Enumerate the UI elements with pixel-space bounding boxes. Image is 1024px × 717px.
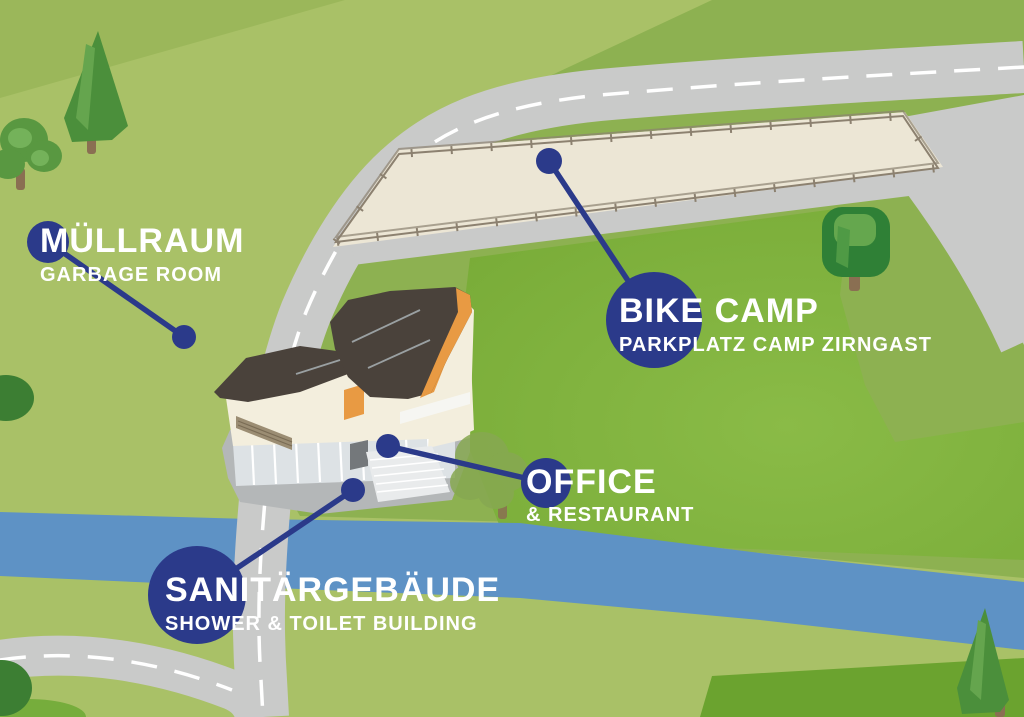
- office-point-dot: [376, 434, 400, 458]
- bike-camp-subtitle: PARKPLATZ CAMP ZIRNGAST: [619, 335, 932, 355]
- building-entrance-door: [350, 440, 368, 470]
- label-sanitaergebaeude: SANITÄRGEBÄUDE SHOWER & TOILET BUILDING: [165, 573, 500, 634]
- office-title: OFFICE: [526, 465, 694, 499]
- office-subtitle: & RESTAURANT: [526, 505, 694, 525]
- sanitaergebaeude-title: SANITÄRGEBÄUDE: [165, 573, 500, 607]
- label-bike-camp: BIKE CAMP PARKPLATZ CAMP ZIRNGAST: [619, 294, 932, 355]
- muellraum-point-dot: [172, 325, 196, 349]
- sanitaergebaeude-subtitle: SHOWER & TOILET BUILDING: [165, 614, 500, 634]
- campsite-map: MÜLLRAUM GARBAGE ROOM BIKE CAMP PARKPLAT…: [0, 0, 1024, 717]
- sanitaergebaeude-point-dot: [341, 478, 365, 502]
- label-muellraum: MÜLLRAUM GARBAGE ROOM: [40, 224, 244, 285]
- building-orange-panel: [344, 384, 364, 420]
- bike-camp-point-dot: [536, 148, 562, 174]
- muellraum-subtitle: GARBAGE ROOM: [40, 265, 244, 285]
- bike-camp-title: BIKE CAMP: [619, 294, 932, 328]
- muellraum-title: MÜLLRAUM: [40, 224, 244, 258]
- map-artwork: [0, 0, 1024, 717]
- label-office: OFFICE & RESTAURANT: [526, 465, 694, 525]
